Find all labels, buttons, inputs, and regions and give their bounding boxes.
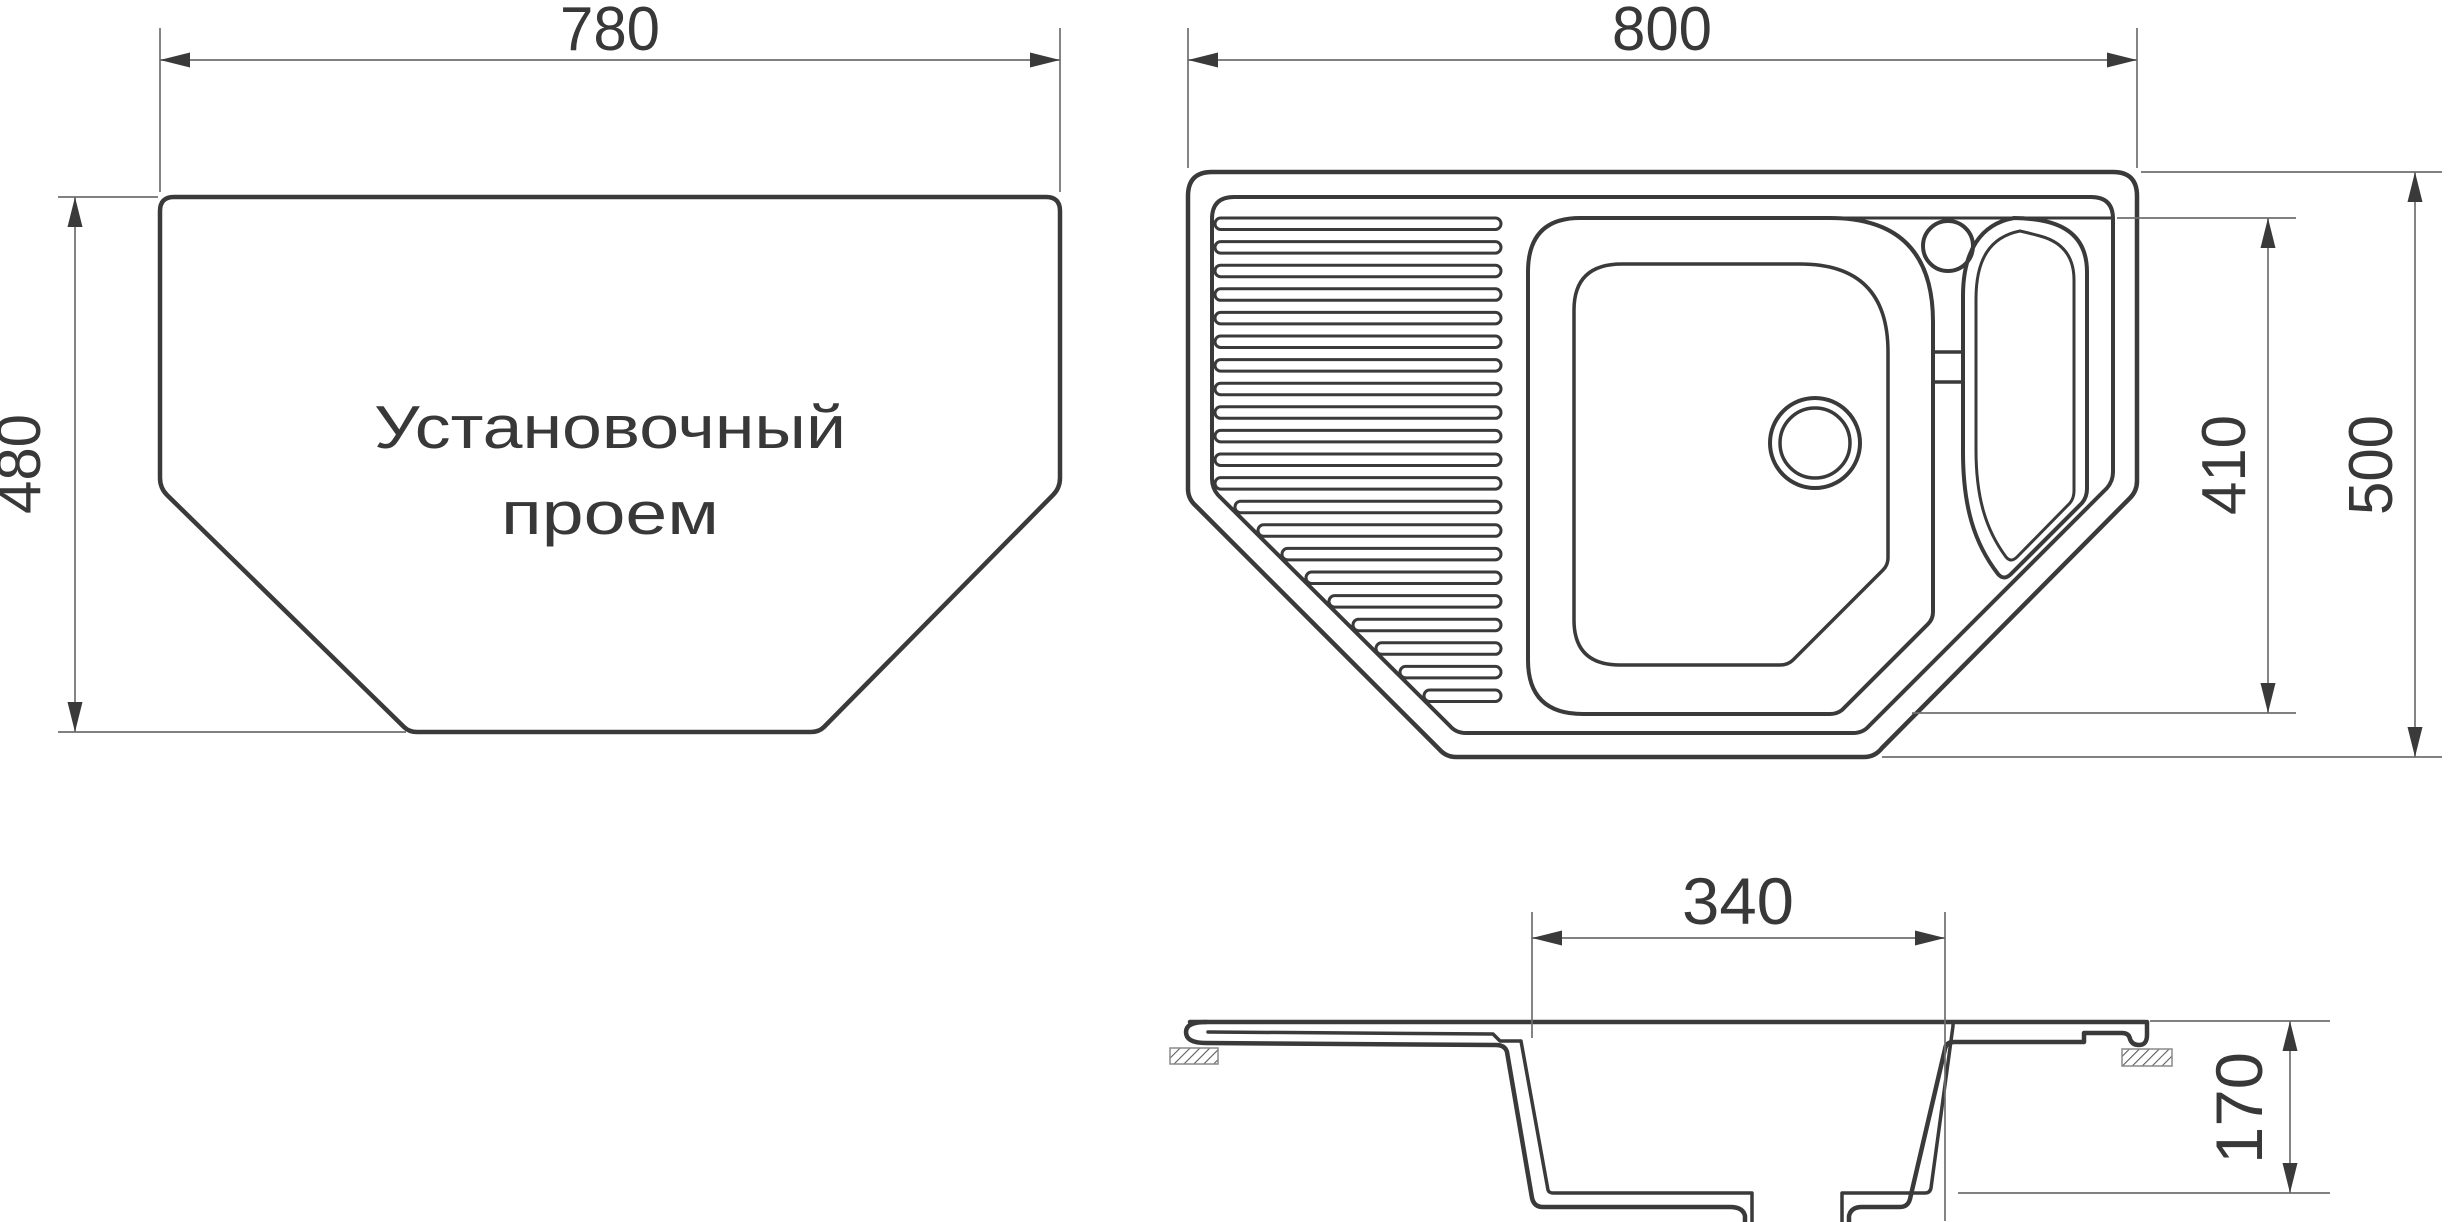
- dim-780: 780: [160, 0, 1060, 192]
- dim-480: 480: [0, 197, 406, 732]
- dim-340: 340: [1532, 864, 1945, 1221]
- dim-480-label: 480: [0, 414, 54, 514]
- drainboard-rib: [1329, 596, 1501, 608]
- dim-800-label: 800: [1612, 0, 1712, 64]
- opening-view: Установочныйпроем780480: [0, 0, 1060, 732]
- small-bowl-inner: [1976, 231, 2074, 560]
- dim-800-arrowhead: [2107, 53, 2137, 68]
- drain-hole-outer: [1770, 398, 1860, 488]
- dim-480-arrowhead: [68, 702, 83, 732]
- small-bowl-outer: [1963, 218, 2087, 578]
- section-inner-left-profile: [1208, 1032, 1752, 1222]
- countertop-hatch-right: [2122, 1049, 2172, 1066]
- opening-label-line-1: Установочный: [374, 394, 846, 461]
- dim-480-arrowhead: [68, 197, 83, 227]
- drainboard-rib: [1258, 525, 1501, 537]
- drainboard-rib: [1400, 666, 1501, 678]
- dim-780-arrowhead: [1030, 53, 1060, 68]
- dim-170-arrowhead: [2283, 1021, 2298, 1051]
- countertop-hatch-left: [1170, 1048, 1218, 1064]
- dim-170-label: 170: [2202, 1052, 2276, 1164]
- dim-410-arrowhead: [2261, 218, 2276, 248]
- section-inner-right-profile: [1842, 1022, 1953, 1222]
- dim-800: 800: [1188, 0, 2137, 168]
- drainboard-rib: [1215, 478, 1501, 490]
- dim-410: 410: [1912, 218, 2296, 713]
- drainboard-rib: [1235, 501, 1501, 513]
- opening-label-line-2: проем: [501, 480, 719, 547]
- drainboard-rib: [1376, 643, 1501, 655]
- drainboard-rib: [1215, 265, 1501, 277]
- dim-500-arrowhead: [2408, 172, 2423, 202]
- drainboard-rib: [1215, 360, 1501, 372]
- drainboard-rib: [1306, 572, 1501, 584]
- dim-170-arrowhead: [2283, 1163, 2298, 1193]
- drainboard-rib: [1215, 289, 1501, 301]
- drainboard-rib: [1353, 619, 1501, 631]
- technical-drawing-page: Установочныйпроем780480800500410340170: [0, 0, 2454, 1222]
- drainboard-rib: [1215, 407, 1501, 419]
- faucet-hole: [1923, 221, 1973, 271]
- drainboard-rib: [1215, 336, 1501, 348]
- dim-410-label: 410: [2190, 415, 2259, 515]
- dim-780-arrowhead: [160, 53, 190, 68]
- drawing-svg: Установочныйпроем780480800500410340170: [0, 0, 2454, 1222]
- drainboard-rib: [1215, 242, 1501, 254]
- drainboard-rib: [1215, 383, 1501, 395]
- drain-hole-inner: [1780, 408, 1850, 478]
- drainboard-rib: [1215, 454, 1501, 466]
- drainboard-rib: [1215, 312, 1501, 324]
- dim-780-label: 780: [560, 0, 660, 64]
- drainboard-ribs: [1215, 218, 1501, 702]
- dim-340-arrowhead: [1915, 931, 1945, 946]
- dim-170: 170: [1958, 1021, 2330, 1193]
- drainboard-rib: [1282, 548, 1501, 560]
- dim-340-label: 340: [1682, 864, 1794, 938]
- dim-800-arrowhead: [1188, 53, 1218, 68]
- section-view: 340170: [1170, 864, 2330, 1222]
- drainboard-rib: [1215, 218, 1501, 230]
- dim-340-arrowhead: [1532, 931, 1562, 946]
- sink-top-view: 800500410: [1188, 0, 2442, 757]
- drainboard-rib: [1424, 690, 1501, 702]
- drainboard-rib: [1215, 430, 1501, 442]
- opening-outline: [160, 197, 1060, 732]
- dim-500-arrowhead: [2408, 727, 2423, 757]
- dim-410-arrowhead: [2261, 683, 2276, 713]
- dim-500-label: 500: [2337, 415, 2406, 515]
